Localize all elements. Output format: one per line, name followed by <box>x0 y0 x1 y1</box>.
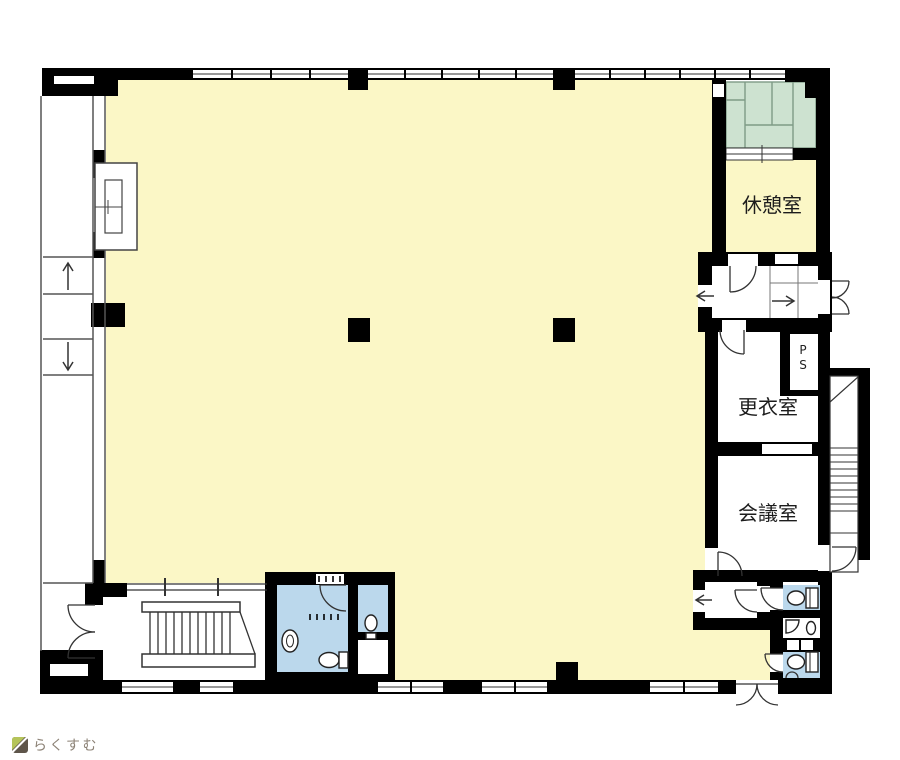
door-opening <box>818 280 830 314</box>
corridor-floor <box>712 266 818 318</box>
exterior-staircase <box>826 368 870 572</box>
washbasin-bowl <box>807 622 816 635</box>
dressing-room-floor <box>718 332 780 442</box>
wall-window-slot <box>50 664 88 676</box>
wall-segment <box>712 80 726 266</box>
wall-segment <box>93 560 105 583</box>
tatami-area <box>726 82 816 148</box>
wall-segment <box>783 610 820 618</box>
free-column <box>91 303 125 327</box>
wall-column <box>556 662 578 682</box>
door-opening <box>705 548 718 570</box>
site-logo: らくすむ <box>11 736 100 755</box>
dressing-room-label: 更衣室 <box>738 395 798 419</box>
door-opening <box>728 254 758 266</box>
vestibule-floor <box>705 582 757 618</box>
wall-column <box>348 68 368 90</box>
wall-segment <box>816 82 830 252</box>
main-floor <box>106 80 712 583</box>
storage-box <box>801 640 813 650</box>
wall-segment <box>85 583 103 605</box>
door-opening <box>818 545 830 571</box>
svg-text:P: P <box>799 343 806 357</box>
rest-room-label: 休憩室 <box>742 193 802 217</box>
floorplan-drawing: 休憩室 更衣室 会議室 P S らくすむ <box>0 0 900 760</box>
wall-segment <box>693 570 832 582</box>
door-opening <box>722 320 746 332</box>
main-floor-south <box>395 583 705 681</box>
urinal-icon <box>365 615 377 631</box>
free-column <box>348 318 370 342</box>
wall-window-slot <box>713 84 724 97</box>
wall-opening <box>762 444 812 454</box>
wall-segment <box>705 330 718 583</box>
alcove-bay <box>95 163 137 250</box>
logo-text: らくすむ <box>33 738 99 754</box>
pipe-shaft-label: P S <box>799 343 807 372</box>
urinal-base <box>366 633 376 639</box>
floorplan-page: 休憩室 更衣室 会議室 P S らくすむ <box>0 0 900 760</box>
wall-window-slot <box>775 254 798 264</box>
toilet-icon <box>788 591 805 605</box>
meeting-room-label: 会議室 <box>738 501 798 525</box>
door-opening <box>770 654 783 672</box>
wall-segment <box>693 618 768 630</box>
toilet-tank <box>339 652 348 668</box>
toilet-tank <box>806 652 818 672</box>
main-floor-southeast <box>705 630 770 681</box>
closet-floor <box>358 640 388 674</box>
toilet-tank <box>806 588 818 608</box>
toilet-icon <box>319 653 339 668</box>
free-column <box>553 318 575 342</box>
wall-segment <box>820 582 832 690</box>
storage-box <box>787 640 799 650</box>
wall-window-slot <box>54 76 94 84</box>
toilet-icon <box>788 655 805 669</box>
svg-text:S: S <box>799 358 807 372</box>
wall-column <box>553 68 575 90</box>
